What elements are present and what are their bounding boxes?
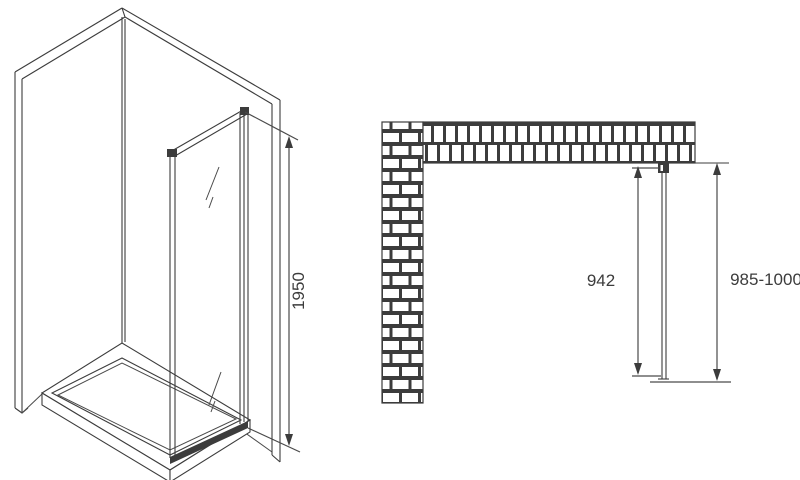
wall-profile-bracket bbox=[658, 163, 669, 173]
arrow-down-icon bbox=[285, 434, 293, 446]
arrow-up-icon bbox=[713, 163, 721, 175]
arrow-down-icon bbox=[713, 369, 721, 381]
dimension-942: 942 bbox=[587, 166, 661, 376]
dimension-1950: 1950 bbox=[245, 112, 308, 452]
arrow-up-icon bbox=[285, 136, 293, 148]
brick-wall-horizontal bbox=[423, 122, 695, 163]
height-dimension-label: 1950 bbox=[289, 272, 308, 310]
dimension-985-1000: 985-1000 bbox=[650, 163, 800, 382]
plan-view: 942 985-1000 bbox=[382, 122, 800, 403]
arrow-down-icon bbox=[634, 363, 642, 375]
total-depth-label: 985-1000 bbox=[730, 270, 800, 289]
brick-wall-vertical bbox=[382, 122, 423, 403]
drawing-canvas: 1950 942 bbox=[0, 0, 800, 480]
glass-length-label: 942 bbox=[587, 271, 615, 290]
glass-panel-plan bbox=[658, 163, 669, 379]
isometric-view: 1950 bbox=[15, 8, 308, 480]
wall-clamp-top-left bbox=[167, 149, 177, 157]
shower-tray bbox=[42, 343, 250, 480]
glass-reflection-marks bbox=[206, 167, 221, 412]
walls-plan bbox=[382, 122, 729, 403]
technical-drawing: 1950 942 bbox=[0, 0, 800, 480]
